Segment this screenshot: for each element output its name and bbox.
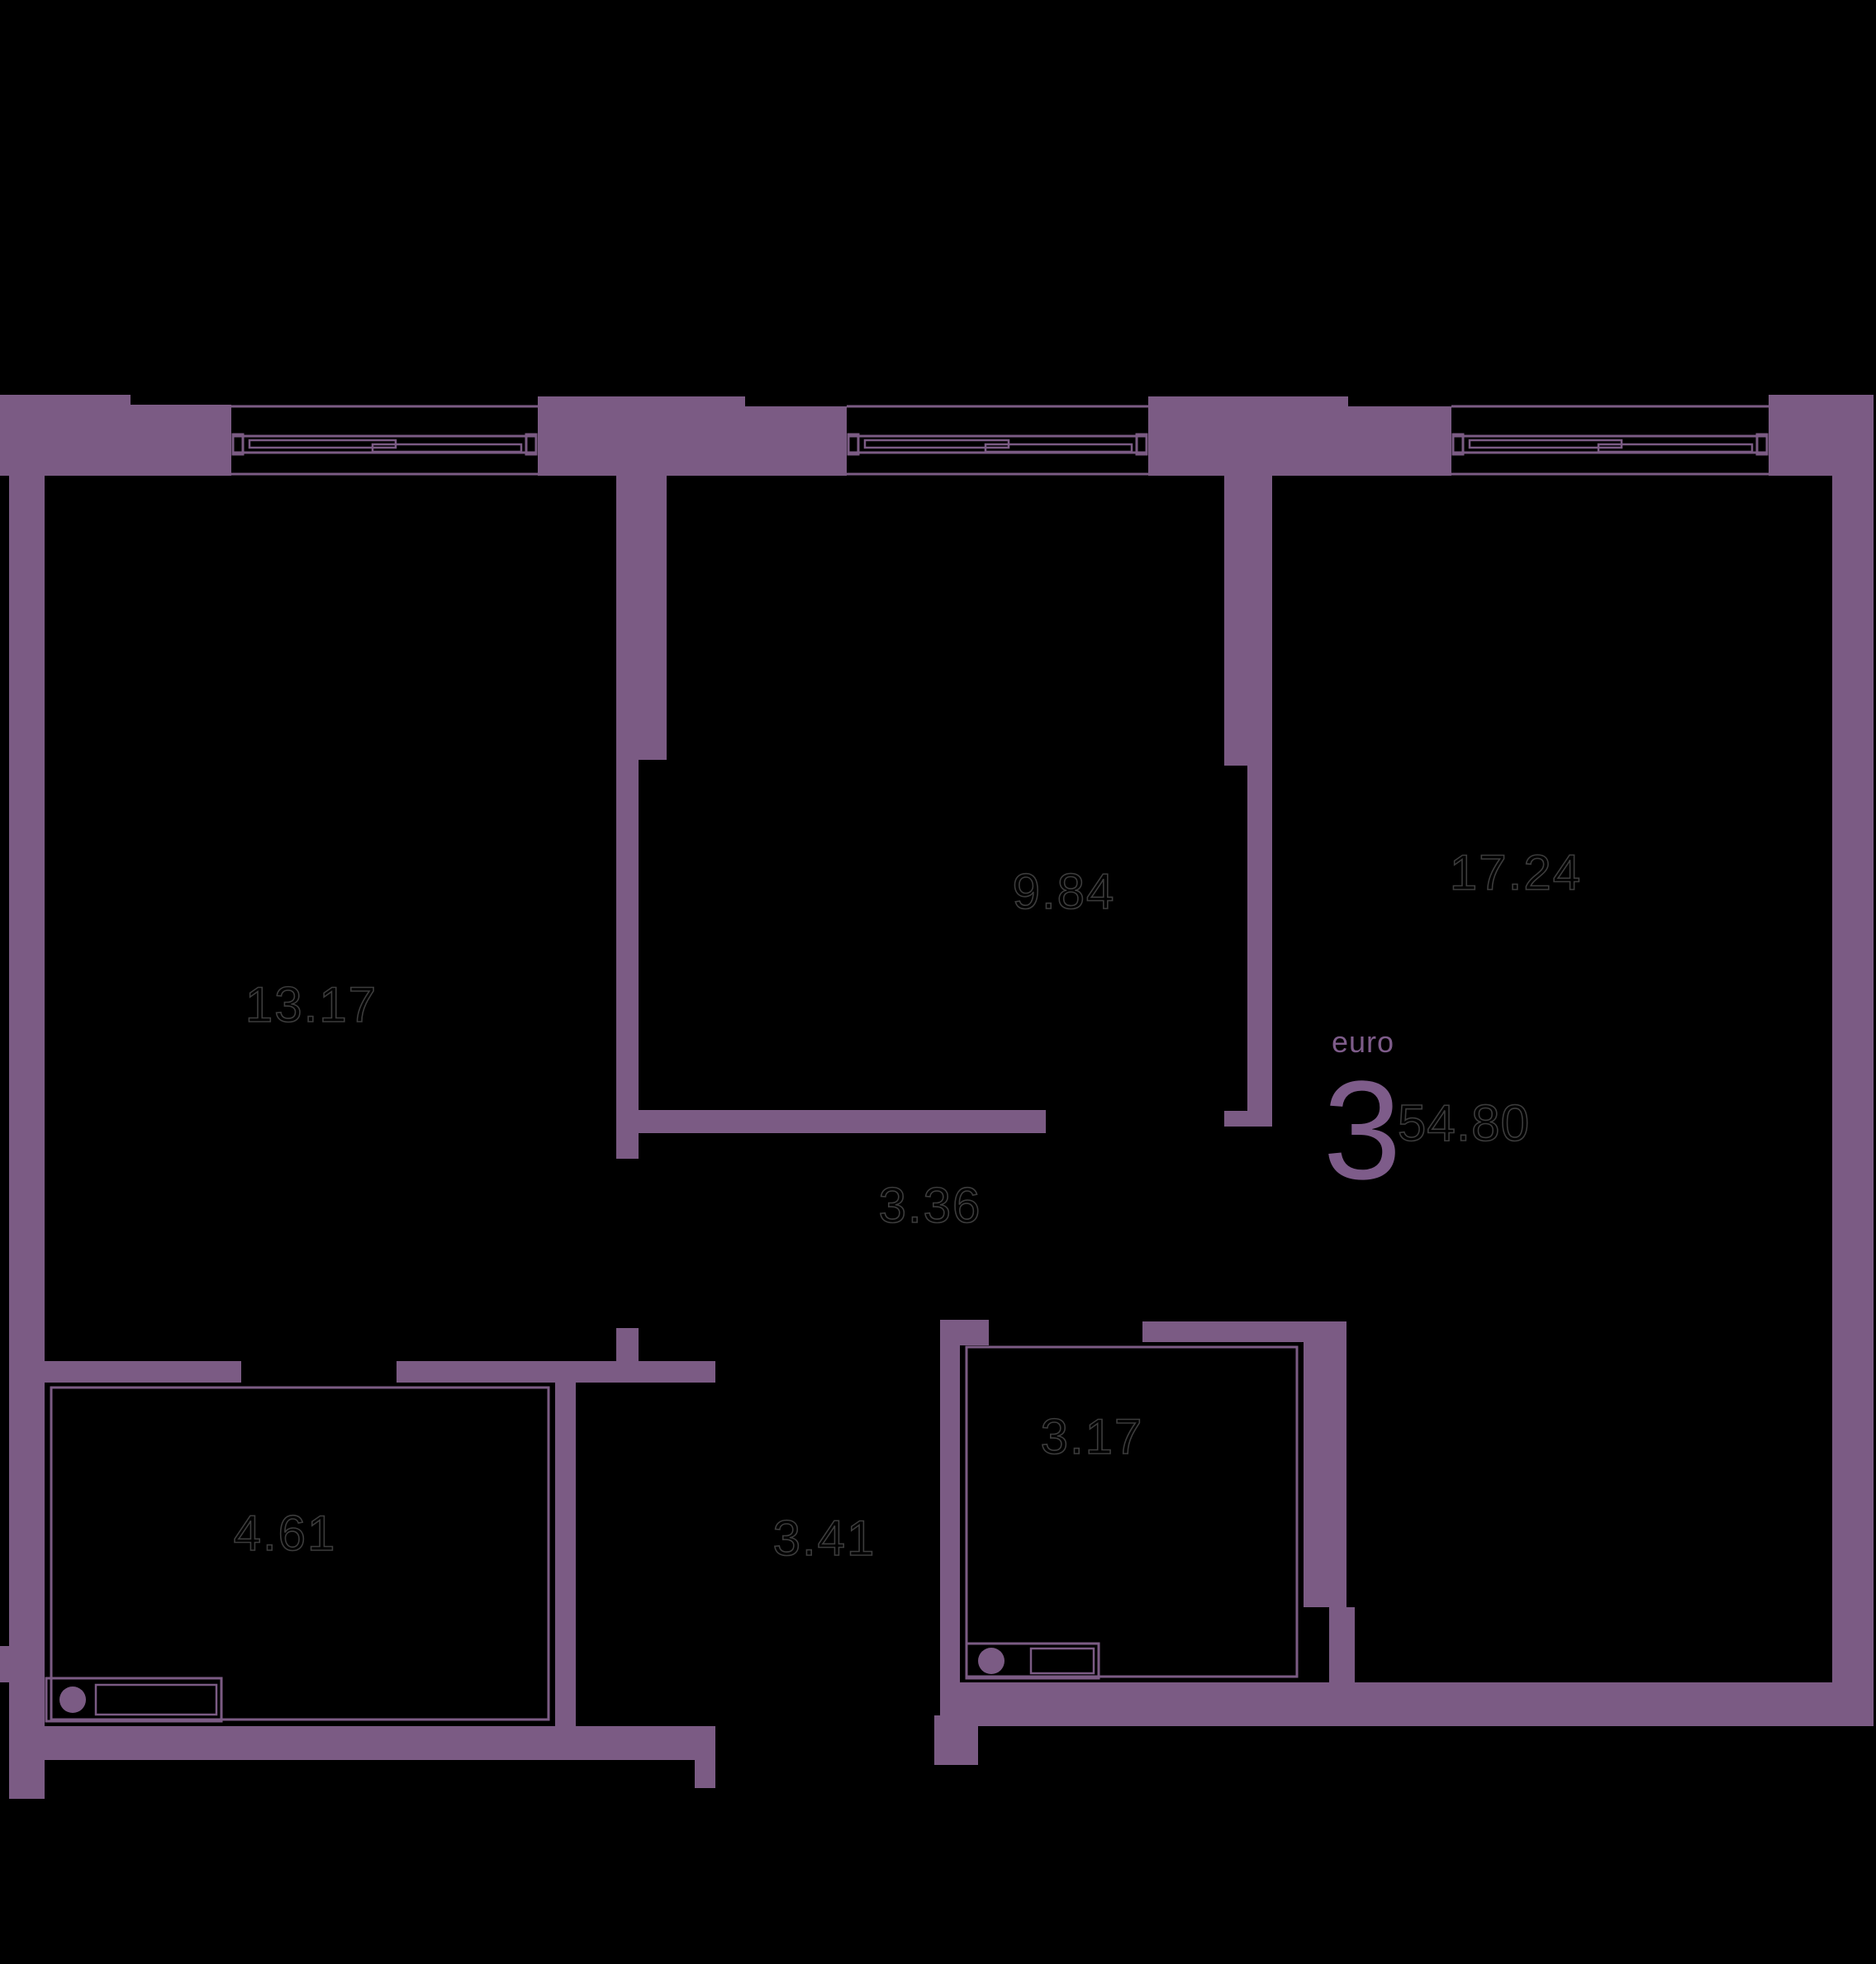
unit-total-area: 54.80 [1398, 1095, 1530, 1152]
area-label-corridor: 3.36 [879, 1178, 982, 1233]
wall-bathroom-top-right [397, 1361, 715, 1383]
wall-living-hall-jamb [616, 1328, 639, 1361]
wall-wc-left-tab [940, 1320, 989, 1345]
wall-bedrooms-foot [1224, 1111, 1272, 1127]
wall-wc-right-upper [1304, 1342, 1346, 1607]
wall-bottom-entry-step-tab [934, 1715, 978, 1765]
wall-bottom-left-band-foot [695, 1760, 715, 1788]
wall-bedrooms-upper [1224, 476, 1272, 766]
area-label-bedroom-right: 17.24 [1450, 845, 1582, 900]
wall-bottom-right-band [950, 1682, 1874, 1726]
wall-bathroom-right [555, 1383, 576, 1726]
wall-living-bedroom-lower [616, 760, 639, 1159]
floor-plan-svg: 13.17 9.84 17.24 3.36 4.61 3.41 3.17 54.… [0, 0, 1876, 1964]
wall-left-nub [0, 1646, 9, 1682]
wall-pier-1-main [538, 396, 745, 476]
wall-corridor-top [639, 1110, 1046, 1133]
wall-wc-left [940, 1345, 960, 1715]
unit-rooms-count: 3 [1323, 1052, 1402, 1209]
area-label-wc: 3.17 [1041, 1409, 1144, 1464]
wall-top-left-step [131, 405, 231, 476]
wall-pier-1-step [745, 406, 847, 476]
floor-plan-page: 13.17 9.84 17.24 3.36 4.61 3.41 3.17 54.… [0, 0, 1876, 1964]
wall-right-outer [1832, 476, 1874, 1682]
wall-top-right-corner-block [1769, 395, 1874, 476]
area-label-living-room: 13.17 [245, 977, 378, 1032]
wall-left-foot [9, 1760, 45, 1799]
wall-living-bedroom-upper [616, 476, 667, 760]
area-label-hallway: 3.41 [773, 1511, 876, 1566]
wall-pier-2-step [1348, 406, 1451, 476]
wall-wc-top [1142, 1321, 1346, 1342]
wall-bathroom-top-left [45, 1361, 241, 1383]
wall-bottom-left-band [9, 1726, 715, 1760]
area-label-bathroom: 4.61 [234, 1506, 337, 1561]
basin-drain-icon [978, 1648, 1004, 1674]
wall-top-left-corner-block [0, 395, 131, 476]
bathtub-drain-icon [59, 1686, 86, 1713]
unit-badge-group: euro 3 [1323, 1025, 1402, 1209]
wall-wc-right-lower [1329, 1607, 1355, 1685]
wall-bedrooms-lower [1247, 766, 1272, 1111]
area-label-bedroom-middle: 9.84 [1013, 864, 1116, 919]
wall-left-outer [9, 476, 45, 1760]
wall-pier-2-main [1148, 396, 1348, 476]
